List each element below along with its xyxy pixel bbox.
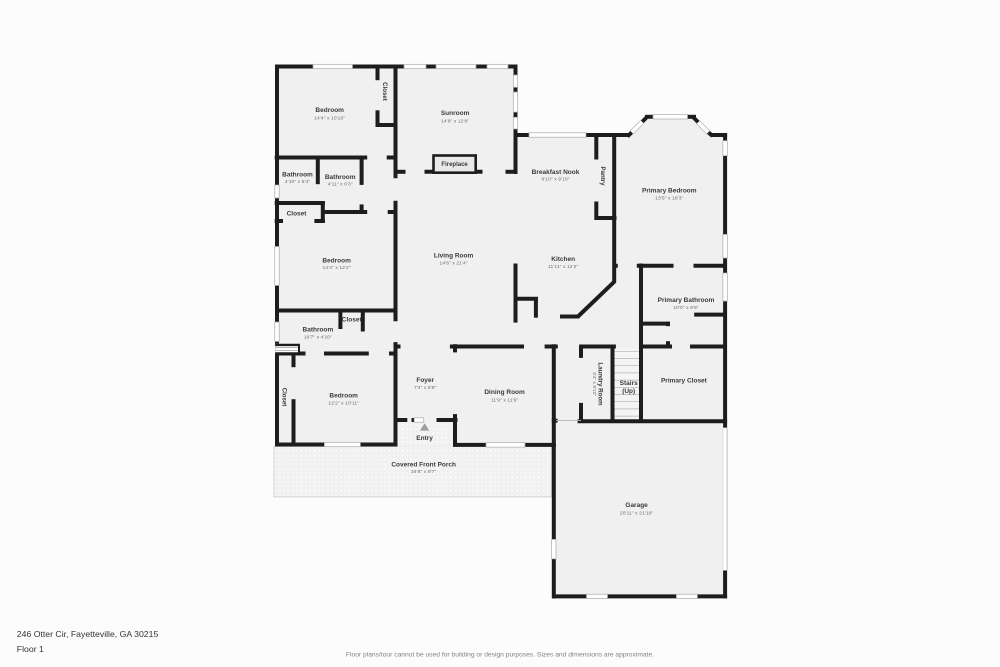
svg-text:14'6" x 21'4": 14'6" x 21'4": [440, 260, 468, 266]
svg-text:Stairs: Stairs: [620, 380, 638, 387]
svg-text:20'11" x 21'10": 20'11" x 21'10": [620, 511, 654, 517]
svg-text:Garage: Garage: [625, 502, 648, 509]
svg-text:Closet: Closet: [287, 211, 308, 218]
svg-text:Sunroom: Sunroom: [441, 110, 470, 117]
svg-text:Dining Room: Dining Room: [484, 389, 525, 396]
svg-text:246 Otter Cir, Fayetteville, G: 246 Otter Cir, Fayetteville, GA 30215: [17, 629, 159, 639]
svg-text:3'4" x 8'10": 3'4" x 8'10": [591, 372, 597, 396]
svg-text:12'2" x 10'11": 12'2" x 10'11": [328, 400, 359, 406]
svg-text:Living Room: Living Room: [434, 253, 474, 260]
svg-text:7'4" x 8'9": 7'4" x 8'9": [414, 385, 437, 391]
svg-text:Bathroom: Bathroom: [303, 327, 334, 334]
svg-text:(Up): (Up): [622, 388, 635, 395]
svg-text:14'8" x 12'8": 14'8" x 12'8": [441, 119, 469, 125]
svg-text:Laundry Room: Laundry Room: [597, 363, 604, 407]
svg-text:Entry: Entry: [416, 435, 433, 442]
svg-text:Breakfast Nook: Breakfast Nook: [532, 169, 580, 176]
svg-text:Primary Bedroom: Primary Bedroom: [642, 187, 697, 194]
svg-text:Floor 1: Floor 1: [17, 644, 44, 654]
svg-text:Covered Front Porch: Covered Front Porch: [391, 461, 456, 468]
svg-text:Closet: Closet: [342, 317, 363, 324]
svg-text:4'10" x 5'4": 4'10" x 5'4": [285, 179, 310, 185]
svg-text:34'6" x 9'7": 34'6" x 9'7": [411, 469, 436, 475]
svg-text:10'7" x 4'10": 10'7" x 4'10": [304, 334, 332, 340]
svg-text:9'10" x 9'10": 9'10" x 9'10": [541, 177, 569, 183]
svg-text:Closet: Closet: [280, 388, 287, 407]
svg-text:Fireplace: Fireplace: [441, 162, 468, 168]
svg-text:Pantry: Pantry: [599, 167, 606, 187]
svg-text:Kitchen: Kitchen: [551, 256, 575, 263]
svg-text:11'9" x 11'9": 11'9" x 11'9": [491, 397, 519, 403]
svg-text:Bedroom: Bedroom: [322, 257, 351, 264]
svg-text:4'11" x 6'3": 4'11" x 6'3": [328, 182, 353, 188]
svg-text:Bedroom: Bedroom: [329, 392, 358, 399]
svg-text:Bathroom: Bathroom: [325, 174, 356, 181]
svg-text:Foyer: Foyer: [416, 377, 434, 384]
svg-text:14'4" x 12'2": 14'4" x 12'2": [323, 265, 351, 271]
svg-text:Bathroom: Bathroom: [282, 171, 313, 178]
svg-text:Primary Bathroom: Primary Bathroom: [658, 297, 715, 304]
svg-text:13'5" x 18'3": 13'5" x 18'3": [655, 195, 683, 201]
svg-text:Floor plans/tour cannot be use: Floor plans/tour cannot be used for buil…: [346, 652, 654, 659]
svg-text:11'11" x 12'2": 11'11" x 12'2": [548, 264, 578, 270]
svg-text:Bedroom: Bedroom: [315, 107, 344, 114]
svg-text:Primary Closet: Primary Closet: [661, 377, 708, 384]
svg-text:Closet: Closet: [381, 82, 388, 101]
svg-text:10'0" x 9'9": 10'0" x 9'9": [673, 305, 698, 311]
svg-text:14'4" x 10'10": 14'4" x 10'10": [314, 116, 345, 122]
